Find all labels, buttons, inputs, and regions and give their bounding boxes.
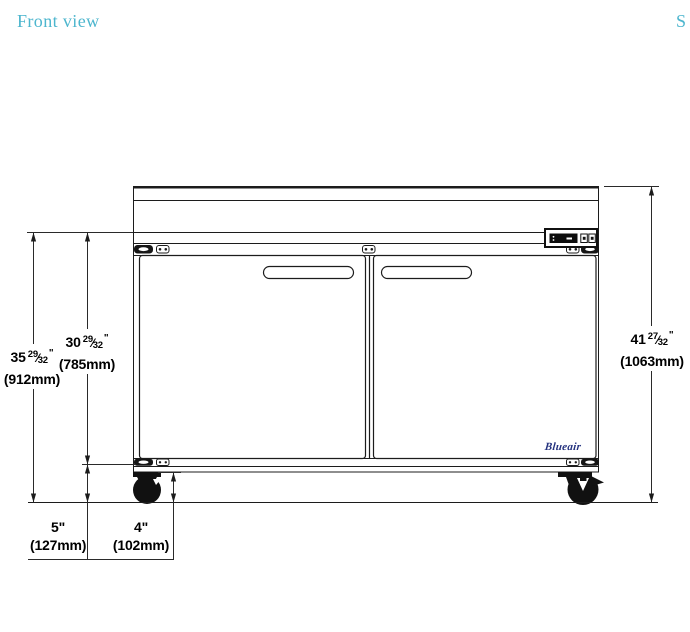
dimension-label-overall-height: 4127⁄32" (1063mm) <box>617 326 687 371</box>
brand-logo: Blueair <box>535 441 590 453</box>
control-panel-display <box>550 234 578 244</box>
right-caster-swivel-arm <box>592 477 604 487</box>
display-colon-dot <box>553 236 555 238</box>
top-center-hinge-clip <box>363 246 376 254</box>
view-title-side-partial: S <box>676 11 686 32</box>
left-door-handle <box>264 267 354 279</box>
dimension-label-body-height: 3029⁄32" (785mm) <box>55 329 119 374</box>
top-left-hinge-slot <box>139 247 149 251</box>
top-left-hinge-clip <box>157 246 170 254</box>
bottom-right-hinge-clip <box>567 459 580 466</box>
bottom-left-hinge-clip <box>157 459 170 466</box>
display-colon-dot <box>553 239 555 241</box>
left-caster <box>133 472 161 504</box>
spec-sheet-page: Front view S Blueair 3529⁄32" (912mm) 30… <box>0 0 690 632</box>
front-view-drawing <box>0 0 690 632</box>
right-caster <box>558 472 604 505</box>
right-door <box>374 256 597 459</box>
dimension-label-caster-height: 5" (127mm) <box>30 517 86 555</box>
left-door <box>140 256 366 459</box>
control-panel <box>545 229 597 247</box>
right-door-handle <box>382 267 472 279</box>
dimension-label-wheel-diameter: 4" (102mm) <box>112 517 170 555</box>
view-title-front: Front view <box>17 11 100 32</box>
display-segment <box>567 238 573 240</box>
